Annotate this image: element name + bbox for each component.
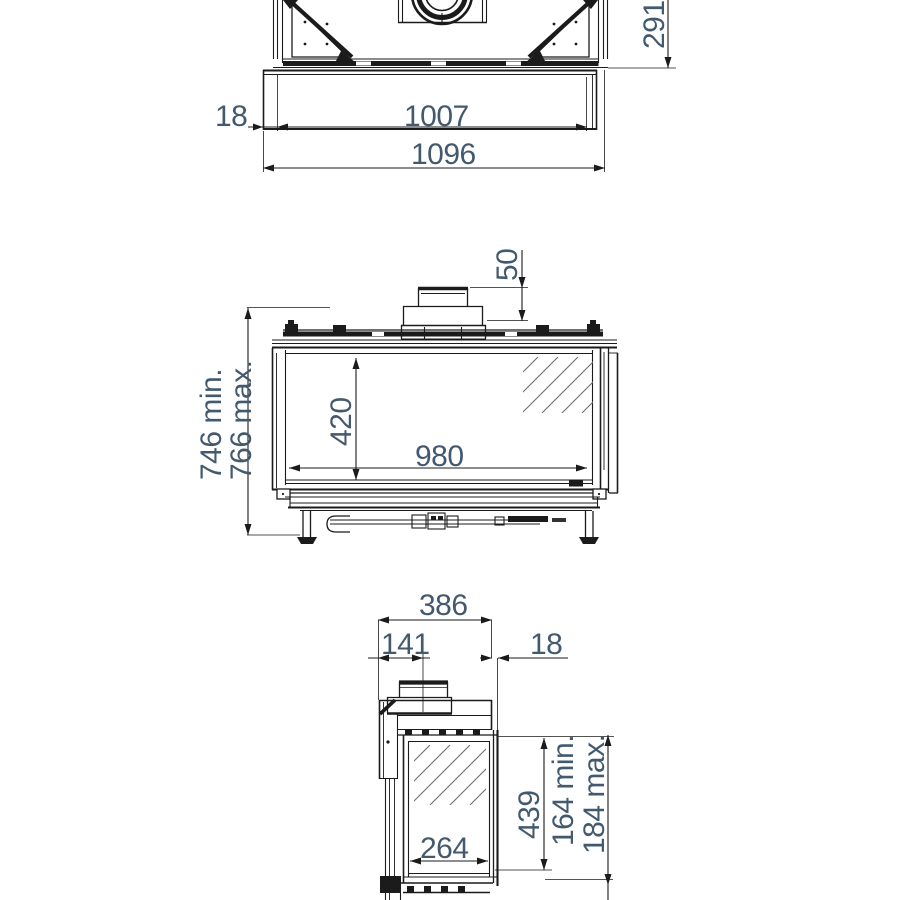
dim-side-plinth-min: 164 min. (547, 735, 580, 846)
glass-reflection-side (370, 745, 530, 805)
top-view-dimensions: 18 1007 1096 291 (215, 0, 676, 172)
dim-side-depth-total: 386 (419, 589, 468, 622)
side-view: 386 141 18 264 439 164 min. (368, 589, 614, 900)
top-view: 18 1007 1096 291 (215, 0, 676, 172)
dim-front-glass-width: 980 (415, 440, 464, 473)
front-view: 50 420 980 746 min. 766 max. (195, 249, 638, 544)
dim-front-height-max: 766 max. (225, 361, 258, 480)
corner-gusset-left (283, 0, 355, 62)
flue-collar-side (387, 682, 452, 714)
mounting-rail (283, 320, 603, 337)
dim-side-glass-width: 264 (420, 832, 469, 865)
drawing-canvas: 18 1007 1096 291 (0, 0, 900, 900)
dim-side-flue-center: 141 (381, 628, 430, 661)
dim-front-height-min: 746 min. (195, 369, 228, 480)
side-view-dimensions: 386 141 18 264 439 164 min. (368, 589, 614, 900)
dim-side-glass-height: 439 (513, 790, 546, 839)
base-assembly-front (277, 489, 606, 544)
dim-top-offset-left: 18 (215, 100, 247, 133)
dim-side-front-offset: 18 (530, 628, 562, 661)
dim-top-width-inner: 1007 (404, 100, 469, 133)
flue-collar-front (401, 288, 486, 339)
technical-drawing-page: 18 1007 1096 291 (0, 0, 900, 900)
corner-gusset-right (526, 0, 598, 62)
dim-side-plinth-max: 184 max. (578, 735, 611, 854)
dim-front-glass-height: 420 (325, 397, 358, 446)
glass-latch (569, 481, 583, 487)
dim-front-collar: 50 (491, 249, 524, 281)
dim-top-width-total: 1096 (411, 138, 476, 171)
front-view-dimensions: 50 420 980 746 min. 766 max. (195, 249, 587, 535)
dim-top-depth: 291 (638, 0, 671, 49)
glass-reflection-front (482, 357, 638, 413)
flue-collar-top (398, 0, 487, 24)
